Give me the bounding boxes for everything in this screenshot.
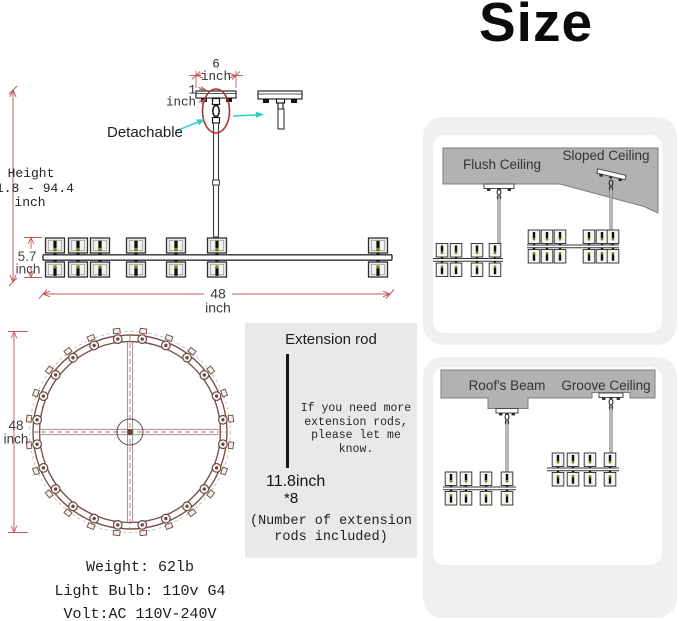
- ring-bulb: [211, 388, 228, 402]
- shade-pair: [69, 238, 88, 277]
- extension-rod-box: Extension rod If you need more extension…: [245, 323, 417, 558]
- ceiling-card-bottom: Roof's Beam Groove Ceiling: [433, 367, 662, 565]
- detachable-label: Detachable: [107, 124, 183, 141]
- ceiling-panel-bottom: Roof's Beam Groove Ceiling: [423, 357, 677, 618]
- dim1-unit: inch: [166, 96, 196, 110]
- ring-bulb: [63, 500, 79, 517]
- flush-sloped-drawing: Flush Ceiling Sloped Ceiling: [433, 135, 662, 333]
- ring-bulb: [86, 513, 100, 530]
- extension-rod-graphic: [286, 354, 289, 468]
- center-point: [128, 430, 132, 434]
- extension-rod-length: 11.8inch: [266, 473, 325, 491]
- groove-ceiling-label: Groove Ceiling: [561, 378, 650, 393]
- mini-chandelier: [547, 393, 623, 486]
- ring-bulb: [198, 483, 215, 499]
- spec-weight: Weight: 62lb: [0, 556, 280, 580]
- height-label: Height: [8, 166, 55, 181]
- shade-pair: [46, 238, 65, 277]
- size-diagram-page: Size Height 11.8 - 94.4 inch: [0, 0, 679, 621]
- ring-bulb: [181, 500, 197, 517]
- diameter-unit: inch: [4, 432, 29, 447]
- sloped-ceiling-label: Sloped Ceiling: [562, 148, 649, 163]
- front-view-drawing: Height 11.8 - 94.4 inch: [0, 0, 420, 320]
- ring-bulb: [160, 513, 174, 530]
- height-range: 11.8 - 94.4: [0, 181, 74, 196]
- detach-direction-arrow-icon: [233, 112, 264, 118]
- shade-pair: [127, 238, 146, 277]
- dim48-unit: inch: [205, 300, 231, 316]
- ceiling-card-top: Flush Ceiling Sloped Ceiling: [433, 135, 662, 333]
- shade-pair: [369, 238, 388, 277]
- spec-list: Weight: 62lb Light Bulb: 110v G4 Volt:AC…: [0, 556, 280, 621]
- extension-rod-title: Extension rod: [245, 331, 417, 348]
- fixture-bar: [43, 255, 392, 260]
- dim57-unit: inch: [16, 262, 41, 277]
- mini-chandelier: [443, 409, 518, 506]
- flush-ceiling-label: Flush Ceiling: [463, 157, 541, 172]
- page-title: Size: [479, 0, 593, 54]
- mini-chandelier: [433, 184, 514, 277]
- top-view-drawing: 48 inch: [0, 318, 245, 562]
- fixture-shades: [46, 238, 388, 277]
- extension-rod-note: If you need more extension rods, please …: [297, 402, 415, 456]
- ceiling-panel-top: Flush Ceiling Sloped Ceiling: [423, 117, 677, 345]
- shade-pair: [167, 238, 186, 277]
- extension-rod-quantity: *8: [284, 490, 298, 507]
- extension-rod-caption: (Number of extension rods included): [247, 514, 415, 546]
- height-unit: inch: [14, 195, 45, 210]
- beam-groove-drawing: Roof's Beam Groove Ceiling: [433, 367, 662, 565]
- shade-pair: [208, 238, 227, 277]
- spec-volt: Volt:AC 110V-240V: [0, 603, 280, 621]
- canopy-detached: [258, 91, 302, 129]
- ring-bulb: [45, 483, 62, 499]
- roofs-beam-label: Roof's Beam: [469, 378, 546, 393]
- dim6-unit: inch: [201, 70, 231, 84]
- shade-pair: [91, 238, 110, 277]
- spec-bulb: Light Bulb: 110v G4: [0, 580, 280, 604]
